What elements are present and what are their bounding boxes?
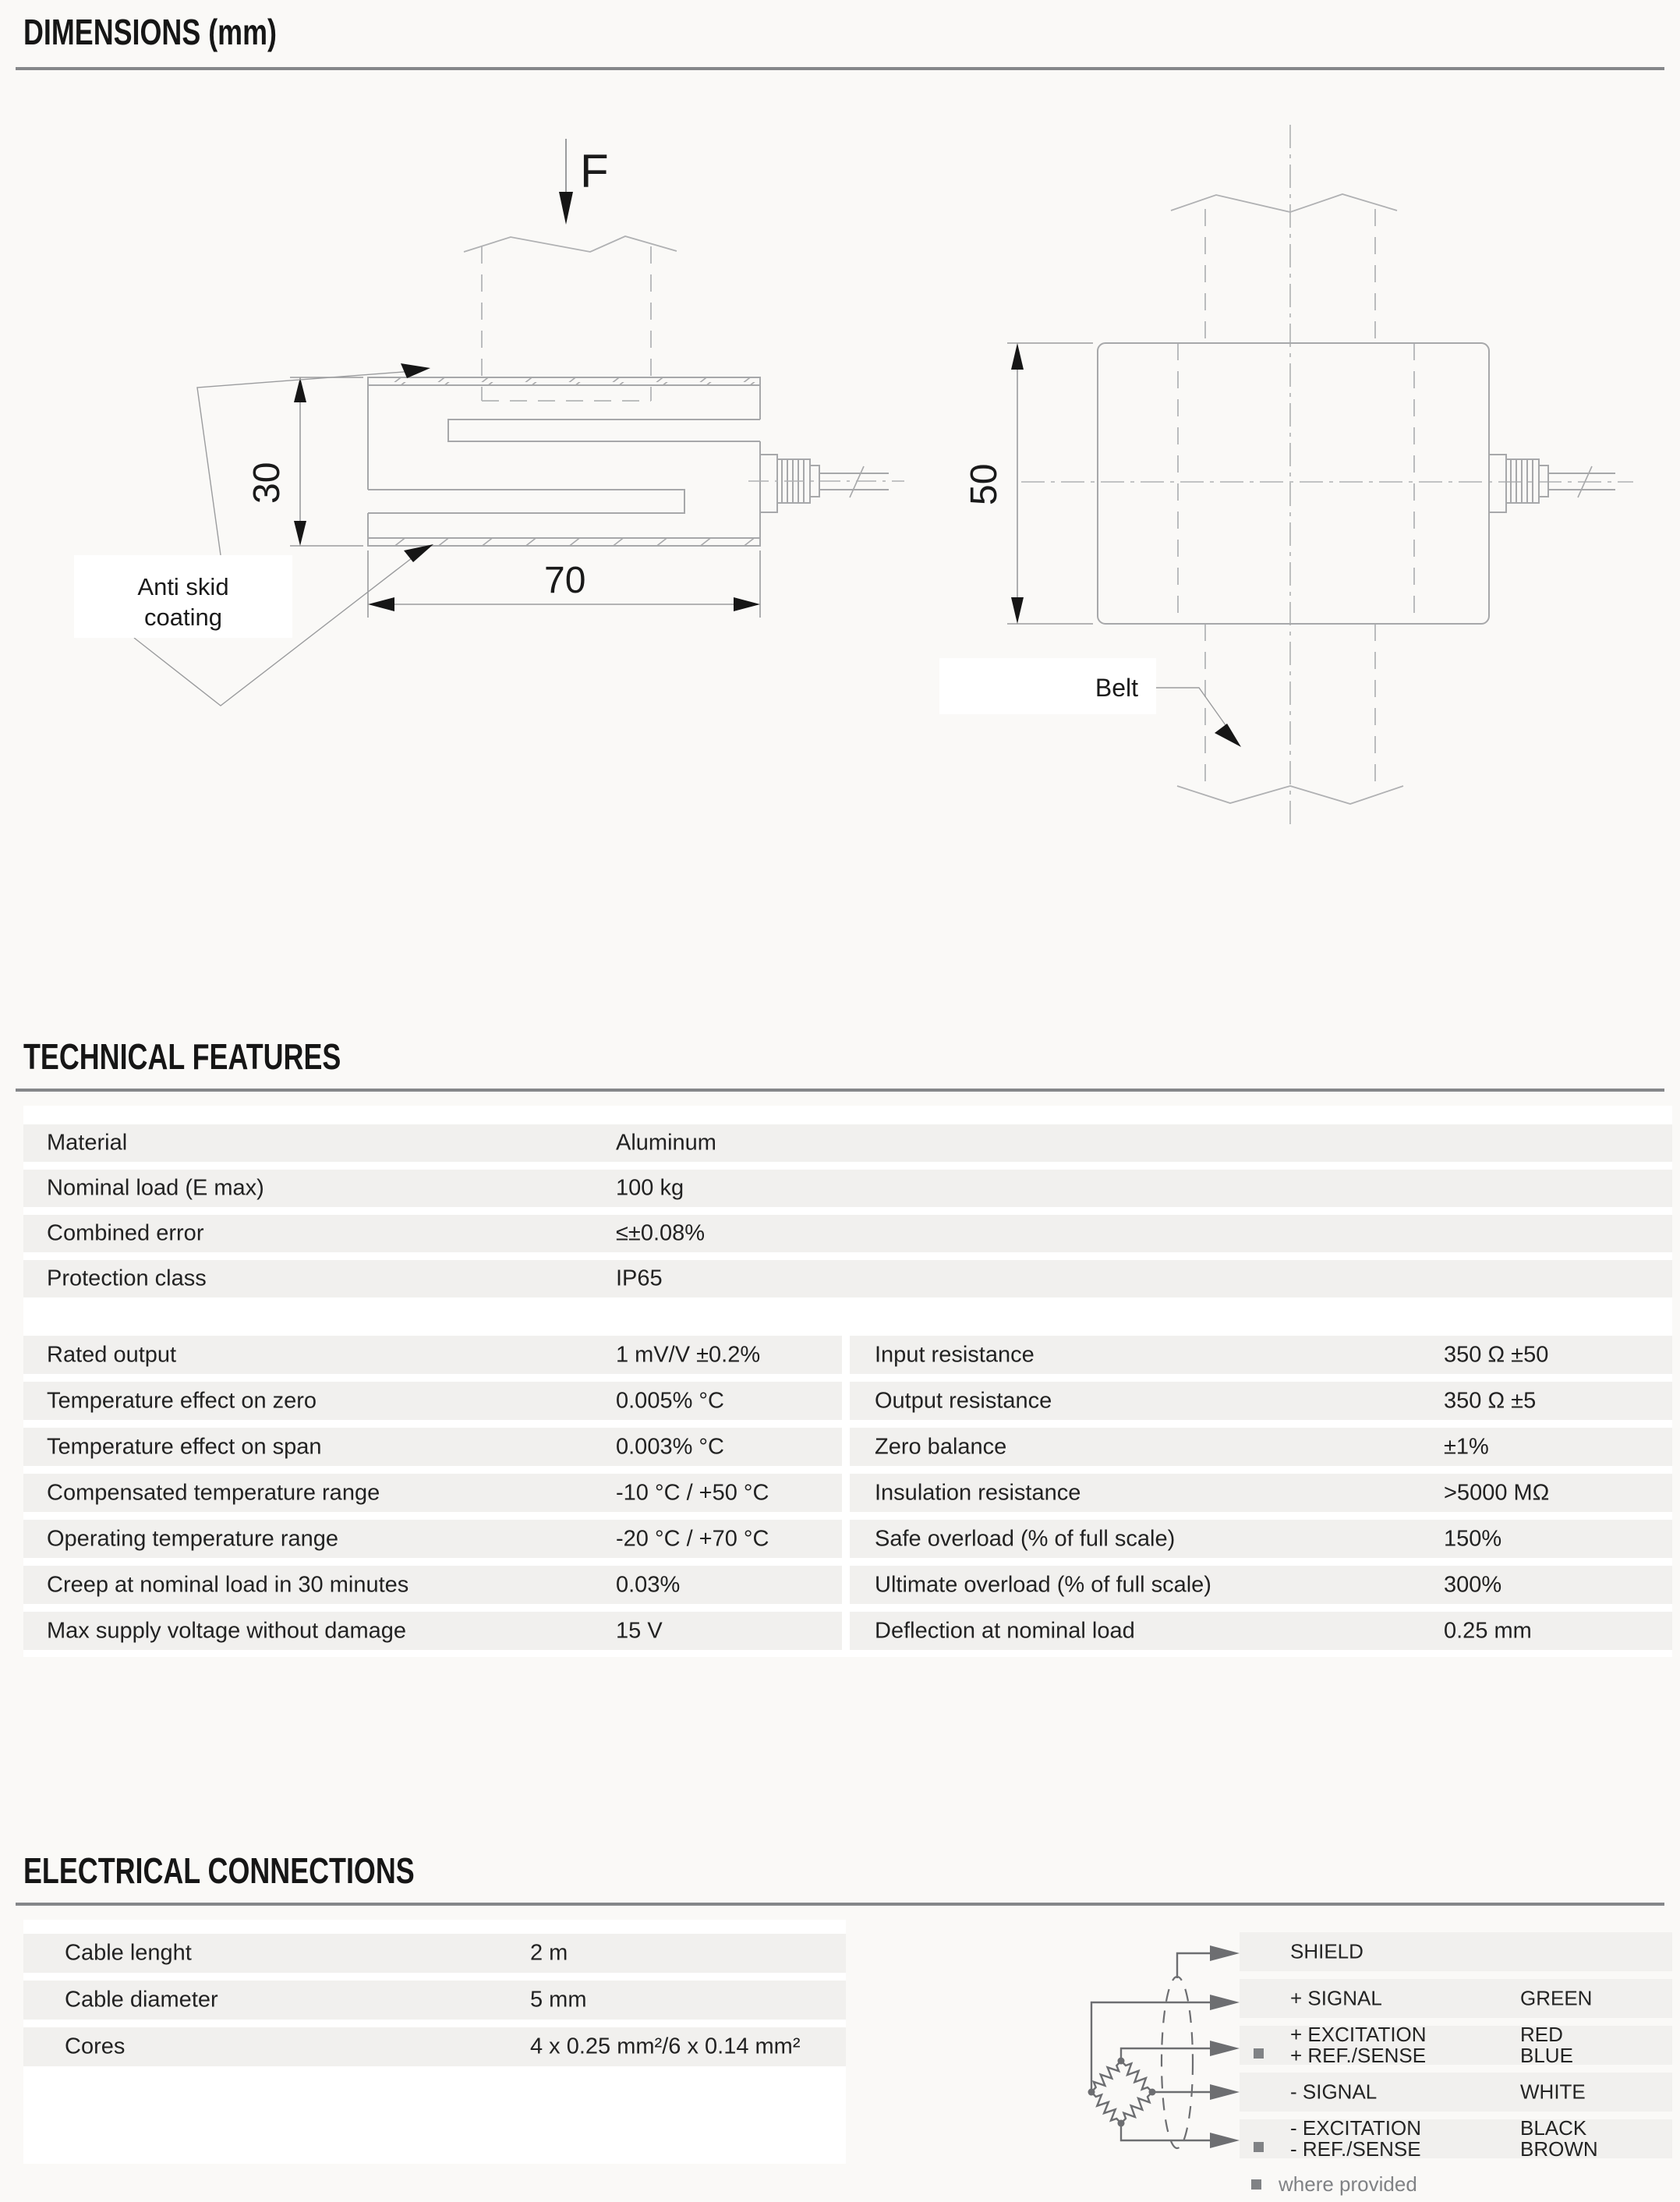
dimension-drawings: F 30 70 Anti skid coating <box>0 0 1680 998</box>
wiring-row-minus-signal: - SIGNAL WHITE <box>1240 2073 1672 2112</box>
spec-value: ≤±0.08% <box>616 1221 705 1247</box>
spec-value: 0.005% °C <box>616 1388 724 1414</box>
force-label: F <box>580 145 609 197</box>
spec-value: 1 mV/V ±0.2% <box>616 1342 760 1368</box>
section-title-technical-text: TECHNICAL FEATURES <box>23 1036 341 1078</box>
belt-leader <box>1156 688 1241 747</box>
spec-value: 5 mm <box>530 1988 587 2013</box>
spec-value: 350 Ω ±50 <box>1444 1342 1548 1368</box>
spec-label: Nominal load (E max) <box>47 1176 264 1202</box>
wiring-label: + EXCITATION <box>1290 2024 1427 2045</box>
table-row: Temperature effect on span 0.003% °C <box>23 1428 842 1466</box>
table-row: Combined error ≤±0.08% <box>23 1215 1672 1252</box>
spec-label: Material <box>47 1131 127 1156</box>
dim-50 <box>1007 343 1093 624</box>
anti-skid-leaders <box>134 363 433 706</box>
spec-value: -10 °C / +50 °C <box>616 1480 769 1506</box>
spec-value: IP65 <box>616 1266 663 1292</box>
spec-value: ±1% <box>1444 1434 1489 1460</box>
table-row: Cable lenght 2 m <box>23 1934 846 1973</box>
spec-label: Input resistance <box>875 1342 1035 1368</box>
spec-value: 0.03% <box>616 1572 680 1598</box>
spec-value: 4 x 0.25 mm²/6 x 0.14 mm² <box>530 2034 801 2060</box>
spec-label: Cores <box>65 2034 125 2060</box>
spec-value: Aluminum <box>616 1131 716 1156</box>
spec-label: Deflection at nominal load <box>875 1618 1135 1644</box>
spec-label: Ultimate overload (% of full scale) <box>875 1572 1211 1598</box>
wiring-row-plus-signal: + SIGNAL GREEN <box>1240 1979 1672 2018</box>
spec-label: Max supply voltage without damage <box>47 1618 406 1644</box>
table-row: Temperature effect on zero 0.005% °C <box>23 1382 842 1420</box>
spec-label: Safe overload (% of full scale) <box>875 1526 1175 1552</box>
wiring-label: + SIGNAL <box>1290 1988 1382 2009</box>
dim-30-label: 30 <box>246 462 288 504</box>
section-title-technical: TECHNICAL FEATURES <box>23 1036 430 1076</box>
side-view-drawing <box>368 236 904 546</box>
bridge-nodes <box>1088 2058 1156 2127</box>
table-row: Ultimate overload (% of full scale) 300% <box>850 1566 1672 1604</box>
wire-color: BLUE <box>1520 2045 1573 2066</box>
table-row: Compensated temperature range -10 °C / +… <box>23 1474 842 1512</box>
wire-color: RED <box>1520 2024 1573 2045</box>
table-row: Output resistance 350 Ω ±5 <box>850 1382 1672 1420</box>
table-row: Zero balance ±1% <box>850 1428 1672 1466</box>
table-row: Max supply voltage without damage 15 V <box>23 1612 842 1650</box>
footnote-text: where provided <box>1279 2172 1417 2197</box>
wire-color: BLACK <box>1520 2118 1598 2139</box>
force-arrow <box>559 139 573 225</box>
wire-color: BROWN <box>1520 2139 1598 2160</box>
anti-skid-label-line2: coating <box>144 604 222 631</box>
datasheet-page: DIMENSIONS (mm) <box>0 0 1680 2202</box>
wiring-label: - REF./SENSE <box>1290 2139 1421 2160</box>
section-title-electrical: ELECTRICAL CONNECTIONS <box>23 1850 525 1890</box>
wiring-arrows <box>1210 1945 1240 2148</box>
table-row: Insulation resistance >5000 MΩ <box>850 1474 1672 1512</box>
where-provided-marker <box>1254 2048 1264 2059</box>
spec-label: Cable lenght <box>65 1941 192 1967</box>
wiring-diagram <box>858 1903 1247 2202</box>
spec-value: 0.003% °C <box>616 1434 724 1460</box>
table-row: Deflection at nominal load 0.25 mm <box>850 1612 1672 1650</box>
spec-value: 15 V <box>616 1618 663 1644</box>
footnote-where-provided: where provided <box>1251 2172 1417 2197</box>
spec-value: 350 Ω ±5 <box>1444 1388 1536 1414</box>
wire-color: GREEN <box>1520 1988 1592 2009</box>
spec-label: Creep at nominal load in 30 minutes <box>47 1572 409 1598</box>
spec-value: 300% <box>1444 1572 1501 1598</box>
wiring-label: - SIGNAL <box>1290 2082 1377 2103</box>
table-row: Safe overload (% of full scale) 150% <box>850 1520 1672 1558</box>
dim-70-label: 70 <box>544 560 585 601</box>
wiring-row-minus-excitation: - EXCITATION - REF./SENSE BLACK BROWN <box>1240 2119 1672 2158</box>
spec-label: Insulation resistance <box>875 1480 1081 1506</box>
spec-value: 2 m <box>530 1941 568 1967</box>
spec-value: 0.25 mm <box>1444 1618 1532 1644</box>
table-row: Operating temperature range -20 °C / +70… <box>23 1520 842 1558</box>
spec-label: Temperature effect on span <box>47 1434 322 1460</box>
section-title-electrical-text: ELECTRICAL CONNECTIONS <box>23 1850 415 1892</box>
wiring-row-plus-excitation: + EXCITATION + REF./SENSE RED BLUE <box>1240 2026 1672 2065</box>
spec-label: Operating temperature range <box>47 1526 338 1552</box>
table-row: Creep at nominal load in 30 minutes 0.03… <box>23 1566 842 1604</box>
table-row: Protection class IP65 <box>23 1260 1672 1297</box>
spec-label: Protection class <box>47 1266 207 1292</box>
wiring-label: + REF./SENSE <box>1290 2045 1427 2066</box>
dim-50-label: 50 <box>964 464 1005 505</box>
table-row: Rated output 1 mV/V ±0.2% <box>23 1336 842 1374</box>
spec-label: Output resistance <box>875 1388 1052 1414</box>
spec-label: Cable diameter <box>65 1988 218 2013</box>
spec-value: -20 °C / +70 °C <box>616 1526 769 1552</box>
wiring-label: - EXCITATION <box>1290 2118 1421 2139</box>
belt-label: Belt <box>1095 674 1138 702</box>
spec-label: Combined error <box>47 1221 203 1247</box>
electrical-rule <box>16 1903 1664 1906</box>
where-provided-marker <box>1254 2142 1264 2152</box>
table-row: Cores 4 x 0.25 mm²/6 x 0.14 mm² <box>23 2027 846 2066</box>
wiring-row-shield: SHIELD <box>1240 1932 1672 1971</box>
dim-30 <box>290 377 363 546</box>
wiring-label: SHIELD <box>1290 1942 1363 1963</box>
spec-value: 150% <box>1444 1526 1501 1552</box>
spec-label: Compensated temperature range <box>47 1480 380 1506</box>
table-row: Nominal load (E max) 100 kg <box>23 1170 1672 1207</box>
spec-label: Rated output <box>47 1342 176 1368</box>
table-row: Input resistance 350 Ω ±50 <box>850 1336 1672 1374</box>
spec-value: 100 kg <box>616 1176 684 1202</box>
technical-rule <box>16 1089 1664 1092</box>
spec-value: >5000 MΩ <box>1444 1480 1549 1506</box>
anti-skid-label-line1: Anti skid <box>137 573 228 600</box>
table-row: Material Aluminum <box>23 1124 1672 1162</box>
table-row: Cable diameter 5 mm <box>23 1981 846 2020</box>
where-provided-marker <box>1251 2179 1261 2190</box>
front-view-drawing <box>1021 125 1633 830</box>
spec-label: Zero balance <box>875 1434 1006 1460</box>
spec-label: Temperature effect on zero <box>47 1388 317 1414</box>
wire-color: WHITE <box>1520 2082 1586 2103</box>
